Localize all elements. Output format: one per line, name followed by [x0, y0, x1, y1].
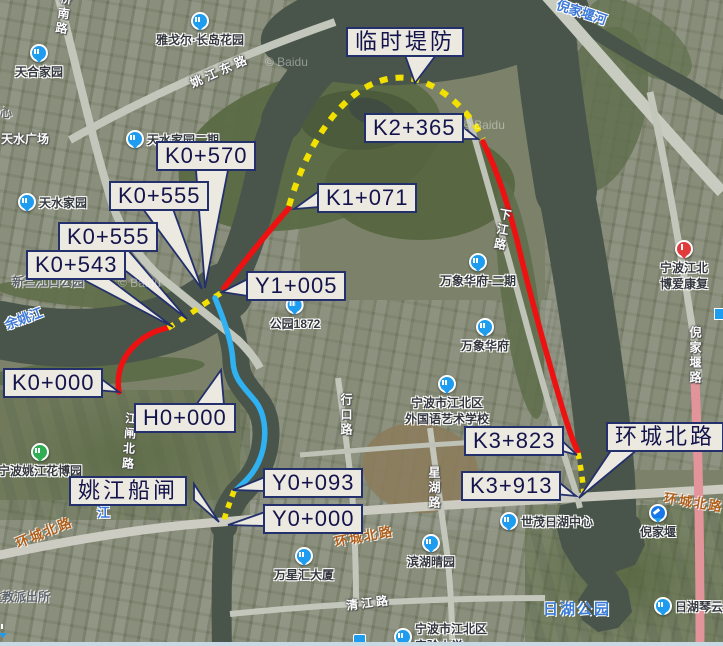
road-label-yaojiangdong: 姚江东路 — [187, 50, 252, 92]
area-label-wenjiao: 文教派出所 — [0, 588, 50, 605]
road-label-nijiayan: 倪家堰路 — [687, 326, 704, 386]
building-icon — [30, 44, 48, 62]
poi-wanxinghui-dasha[interactable]: 万星汇大厦 — [274, 547, 334, 583]
callout-k2-365: K2+365 — [364, 113, 464, 143]
building-icon — [191, 12, 209, 30]
callout-k0-543: K0+543 — [26, 250, 126, 280]
building-icon — [18, 193, 36, 211]
poi-foreign-language-art-school[interactable]: 宁波市江北区 外国语艺术学校 — [405, 375, 489, 427]
poi-boai-hospital[interactable]: 宁波江北 博爱康复 — [660, 240, 708, 292]
callout-k0-570: K0+570 — [156, 141, 256, 171]
road-label-huancheng-left: 环城北路 — [13, 511, 76, 551]
poi-yageer-changdao[interactable]: 雅戈尔·长岛花园 — [156, 12, 244, 48]
road-label-xiajiang: 下江路 — [490, 207, 515, 254]
building-icon — [126, 130, 144, 148]
poi-label-line1: 宁波市江北区 — [415, 620, 487, 637]
poi-label: 日湖琴云 — [675, 598, 723, 615]
callout-k0-000: K0+000 — [3, 368, 103, 398]
building-icon — [476, 318, 494, 336]
poi-shimao-rihu-center[interactable]: 世茂日湖中心 — [500, 512, 593, 530]
callout-huancheng-beilu: 环城北路 — [606, 422, 723, 452]
poi-tianshui-jiayuan[interactable]: 天水家园 — [18, 193, 87, 211]
building-icon — [295, 547, 313, 565]
building-icon — [500, 512, 518, 530]
road-label-qiaonan: 桥南路 — [52, 0, 75, 38]
building-icon — [654, 597, 672, 615]
road-label-xinghu: 星湖路 — [426, 466, 443, 511]
river-label-yuyaojiang: 余姚江 — [2, 302, 45, 333]
callout-k1-071: K1+071 — [317, 183, 417, 213]
callout-h0-000: H0+000 — [134, 403, 236, 433]
callout-y1-005: Y1+005 — [246, 271, 346, 301]
poi-label-line2: 外国语艺术学校 — [405, 410, 489, 427]
park-label-rihu: 日湖公园 — [543, 598, 611, 619]
callout-linshi-difang: 临时堤防 — [346, 27, 464, 57]
building-icon — [469, 253, 487, 271]
area-label-tianshui-guangchang: 天水广场 — [1, 130, 49, 147]
river-label-nijiayanhe: 倪家堰河 — [554, 0, 609, 29]
hospital-icon — [675, 240, 693, 258]
poi-binhu-qingyuan[interactable]: 滨湖晴园 — [407, 534, 455, 570]
building-icon — [422, 534, 440, 552]
poi-label: 天水家园 — [39, 194, 87, 211]
poi-wanxiang-huafu[interactable]: 万象华府 — [461, 318, 509, 354]
baidu-satellite-map[interactable]: © Baidu © Baidu © Baidu 余姚江 倪家堰河 江 桥南路 姚… — [0, 0, 723, 646]
area-label-fragment-xin: 心 — [0, 104, 12, 121]
callout-y0-000: Y0+000 — [263, 504, 363, 534]
baidu-watermark: © Baidu — [265, 55, 308, 69]
metro-icon — [649, 504, 667, 522]
poi-nijiayan-metro-station[interactable]: 倪家堰 — [640, 504, 676, 540]
poi-label: 世茂日湖中心 — [521, 513, 593, 530]
road-label-xingkou: 行口路 — [338, 393, 355, 438]
road-label-qingjiang: 清江路 — [345, 591, 392, 613]
callout-k3-913: K3+913 — [461, 471, 561, 501]
poi-yaojiang-huabo-garden[interactable]: 宁波姚江花博园 — [0, 443, 82, 479]
bottom-edge-strip — [0, 642, 723, 646]
callout-k0-555-b: K0+555 — [58, 222, 158, 252]
callout-yaojiang-chuanzha: 姚江船闸 — [69, 476, 187, 506]
baidu-watermark: © Baidu — [462, 118, 505, 132]
poi-wanxiang-huafu-erqi[interactable]: 万象华府-二期 — [440, 253, 516, 289]
poi-gongyuan-1872[interactable]: 公园1872 — [270, 296, 321, 332]
building-icon — [714, 308, 723, 320]
school-icon — [438, 375, 456, 393]
poi-rihu-qinyun[interactable]: 日湖琴云 — [654, 597, 723, 615]
callout-y0-093: Y0+093 — [263, 468, 363, 498]
callout-k0-555-a: K0+555 — [109, 181, 209, 211]
callout-k3-823: K3+823 — [464, 426, 564, 456]
poi-tianhe-jiayuan[interactable]: 天合家园 — [15, 44, 63, 80]
garden-icon — [31, 443, 49, 461]
poi-label-line2: 博爱康复 — [660, 275, 708, 292]
